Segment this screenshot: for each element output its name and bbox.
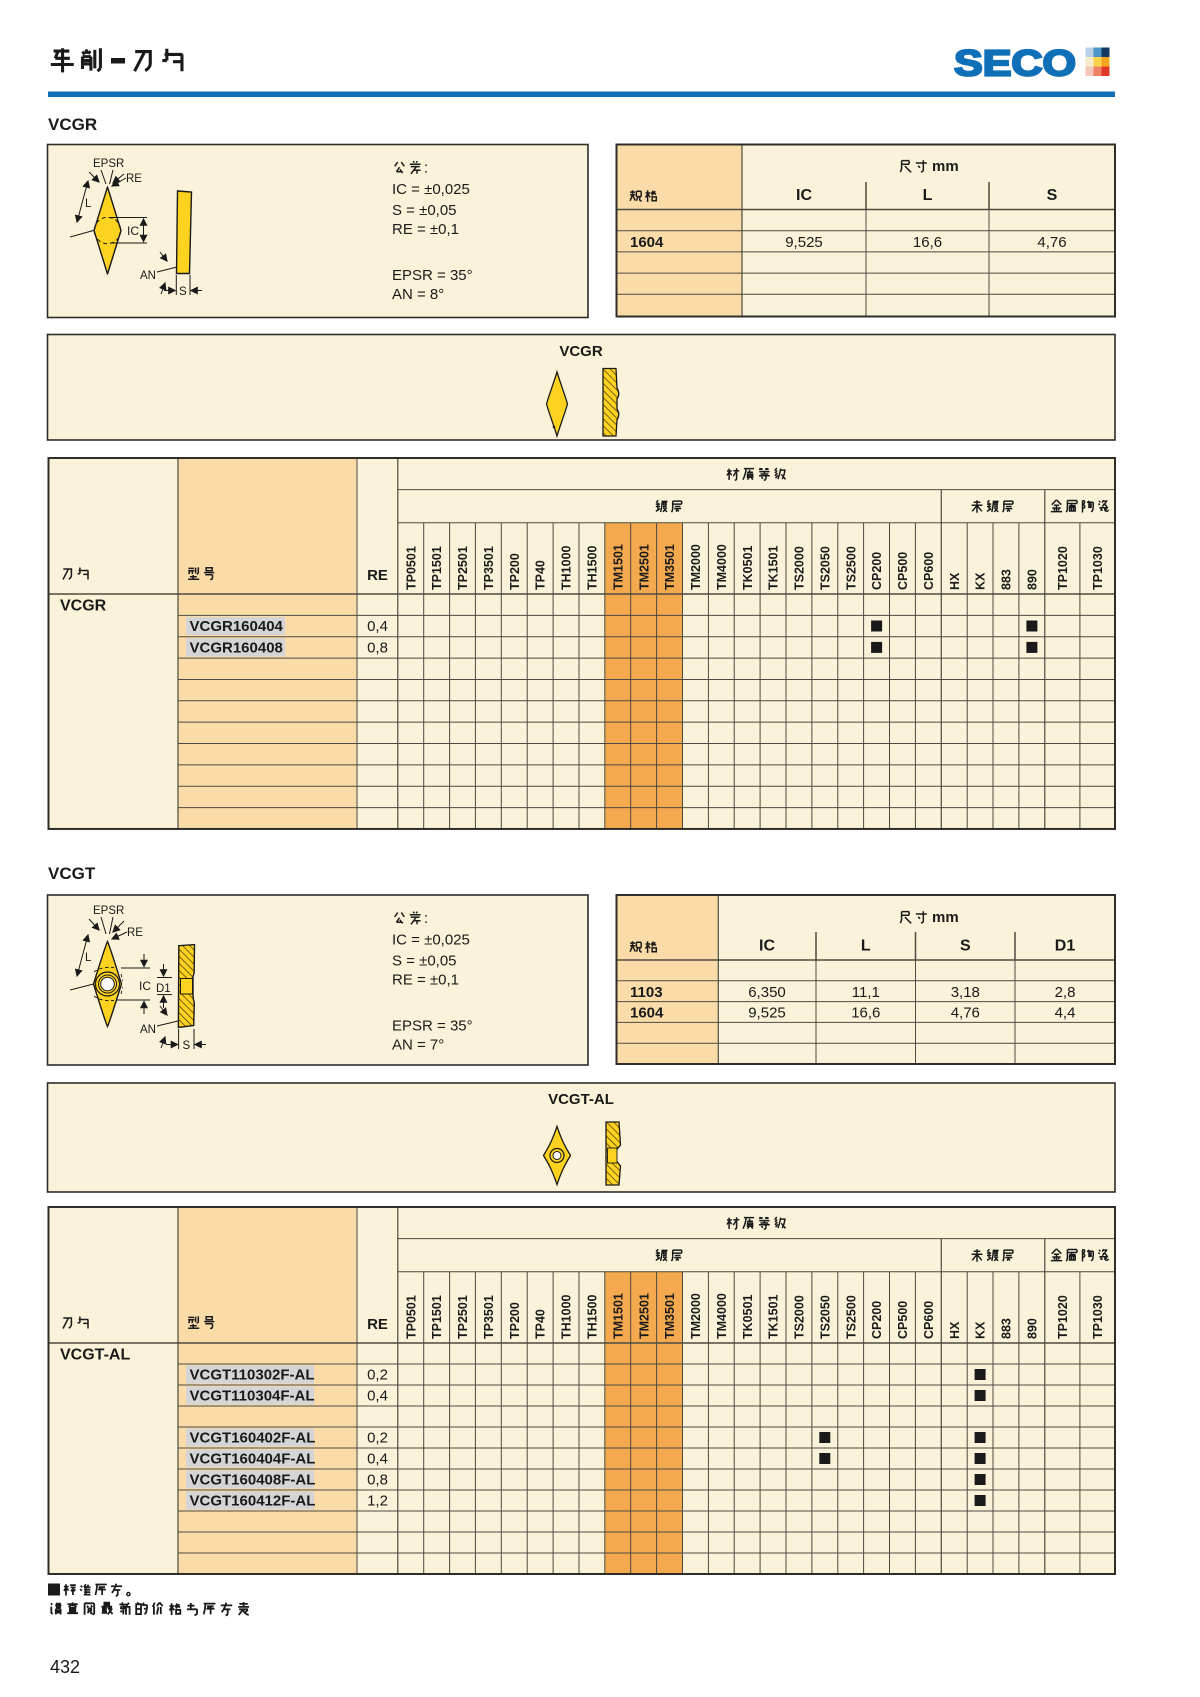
svg-text:VCGT160408F-AL: VCGT160408F-AL (190, 1472, 316, 1489)
svg-text:AN: AN (140, 1024, 156, 1036)
svg-text:TH1500: TH1500 (586, 545, 600, 590)
svg-text:VCGR: VCGR (559, 343, 603, 360)
svg-text:IC: IC (127, 224, 139, 238)
svg-text:TM1501: TM1501 (611, 544, 625, 590)
svg-text:AN = 7°: AN = 7° (392, 1037, 444, 1054)
svg-text:TK1501: TK1501 (767, 1294, 781, 1339)
svg-text:IC: IC (796, 187, 812, 204)
svg-text::: : (424, 160, 428, 177)
svg-text:TM3501: TM3501 (663, 544, 677, 590)
svg-text:0,4: 0,4 (367, 618, 388, 635)
svg-text:VCGT110304F-AL: VCGT110304F-AL (190, 1388, 315, 1405)
svg-text:890: 890 (1025, 569, 1039, 590)
svg-text:9,525: 9,525 (748, 1005, 786, 1022)
svg-text:KX: KX (974, 1321, 988, 1339)
svg-text:S = ±0,05: S = ±0,05 (392, 202, 457, 219)
svg-text:CP600: CP600 (922, 552, 936, 590)
svg-text:TS2500: TS2500 (844, 1295, 858, 1339)
svg-text:16,6: 16,6 (851, 1005, 880, 1022)
svg-text:RE: RE (367, 1316, 388, 1333)
svg-text:TS2000: TS2000 (793, 1295, 807, 1339)
svg-text:TK0501: TK0501 (741, 1294, 755, 1339)
svg-text:TP200: TP200 (508, 553, 522, 590)
svg-text:CP500: CP500 (896, 1301, 910, 1339)
svg-text:VCGT: VCGT (48, 864, 96, 883)
svg-text:AN = 8°: AN = 8° (392, 286, 444, 303)
svg-text:L: L (85, 198, 92, 210)
svg-text:VCGR160408: VCGR160408 (190, 640, 283, 657)
svg-text:TP1030: TP1030 (1091, 546, 1105, 590)
svg-text:TP1020: TP1020 (1056, 1295, 1070, 1339)
svg-text:EPSR: EPSR (93, 158, 124, 170)
svg-text:EPSR: EPSR (93, 905, 124, 917)
svg-text:0,4: 0,4 (367, 1388, 388, 1405)
svg-text:VCGT160412F-AL: VCGT160412F-AL (190, 1493, 316, 1510)
svg-text:IC: IC (759, 938, 775, 955)
svg-text:1,2: 1,2 (367, 1493, 388, 1510)
svg-text:TP1501: TP1501 (430, 546, 444, 590)
svg-text:RE: RE (127, 927, 143, 939)
svg-text:S: S (179, 286, 187, 298)
svg-text:0,2: 0,2 (367, 1367, 388, 1384)
svg-text:VCGR160404: VCGR160404 (190, 618, 284, 635)
svg-text:432: 432 (50, 1657, 80, 1677)
svg-text:1604: 1604 (630, 1005, 664, 1022)
svg-text:6,350: 6,350 (748, 984, 786, 1001)
svg-text:RE: RE (367, 567, 388, 584)
svg-text:IC = ±0,025: IC = ±0,025 (392, 932, 470, 949)
svg-text:D1: D1 (156, 983, 171, 995)
svg-text:TM2000: TM2000 (689, 544, 703, 590)
svg-text:mm: mm (932, 158, 959, 175)
svg-text:SECO: SECO (954, 43, 1076, 84)
svg-text:CP500: CP500 (896, 552, 910, 590)
svg-text:EPSR = 35°: EPSR = 35° (392, 267, 473, 284)
svg-text:1103: 1103 (630, 984, 663, 1001)
svg-text:CP200: CP200 (870, 1301, 884, 1339)
svg-text:0,2: 0,2 (367, 1430, 388, 1447)
svg-text:RE: RE (126, 173, 142, 185)
svg-text:VCGR: VCGR (60, 597, 107, 614)
svg-text:VCGT110302F-AL: VCGT110302F-AL (190, 1367, 315, 1384)
svg-text:L: L (85, 952, 92, 964)
svg-text:TS2500: TS2500 (844, 546, 858, 590)
svg-text:TP2501: TP2501 (456, 1295, 470, 1339)
svg-text:9,525: 9,525 (785, 234, 823, 251)
svg-text:TP1020: TP1020 (1056, 546, 1070, 590)
svg-text:TP40: TP40 (534, 1309, 548, 1339)
svg-text:VCGT-AL: VCGT-AL (60, 1346, 130, 1363)
svg-text:CP600: CP600 (922, 1301, 936, 1339)
svg-text:S = ±0,05: S = ±0,05 (392, 953, 457, 970)
svg-text:0,8: 0,8 (367, 640, 388, 657)
svg-text::: : (424, 910, 428, 927)
svg-text:TS2050: TS2050 (818, 1295, 832, 1339)
svg-text:IC = ±0,025: IC = ±0,025 (392, 181, 470, 198)
svg-text:16,6: 16,6 (913, 234, 942, 251)
svg-text:TM2501: TM2501 (637, 1293, 651, 1339)
svg-text:890: 890 (1025, 1318, 1039, 1339)
svg-text:IC: IC (139, 979, 151, 993)
svg-text:TP1030: TP1030 (1091, 1295, 1105, 1339)
svg-text:VCGT160404F-AL: VCGT160404F-AL (190, 1451, 316, 1468)
svg-text:TH1000: TH1000 (560, 1294, 574, 1339)
svg-text:AN: AN (140, 270, 156, 282)
svg-text:CP200: CP200 (870, 552, 884, 590)
svg-text:2,8: 2,8 (1055, 984, 1076, 1001)
svg-text:KX: KX (974, 572, 988, 590)
svg-text:4,4: 4,4 (1055, 1005, 1076, 1022)
svg-text:TM3501: TM3501 (663, 1293, 677, 1339)
svg-text:VCGT160402F-AL: VCGT160402F-AL (190, 1430, 316, 1447)
svg-text:HX: HX (948, 572, 962, 590)
svg-text:EPSR = 35°: EPSR = 35° (392, 1018, 473, 1035)
svg-text:RE = ±0,1: RE = ±0,1 (392, 972, 459, 989)
svg-text:RE = ±0,1: RE = ±0,1 (392, 221, 459, 238)
svg-text:S: S (1047, 187, 1058, 204)
svg-text:4,76: 4,76 (1037, 234, 1066, 251)
svg-text:VCGR: VCGR (48, 115, 97, 134)
svg-text:0,8: 0,8 (367, 1472, 388, 1489)
svg-text:11,1: 11,1 (852, 984, 880, 1001)
svg-text:TS2050: TS2050 (818, 546, 832, 590)
svg-text:S: S (183, 1040, 191, 1052)
svg-text:L: L (923, 187, 933, 204)
svg-text:TP2501: TP2501 (456, 546, 470, 590)
svg-text:TM4000: TM4000 (715, 544, 729, 590)
svg-text:TK0501: TK0501 (741, 545, 755, 590)
svg-text:883: 883 (1000, 1318, 1014, 1339)
svg-text:S: S (960, 938, 971, 955)
svg-text:TP0501: TP0501 (404, 546, 418, 590)
svg-text:0,4: 0,4 (367, 1451, 388, 1468)
svg-text:TH1000: TH1000 (560, 545, 574, 590)
svg-text:TM4000: TM4000 (715, 1293, 729, 1339)
svg-text:TP40: TP40 (534, 560, 548, 590)
svg-text:TK1501: TK1501 (767, 545, 781, 590)
svg-text:TP3501: TP3501 (482, 546, 496, 590)
svg-text:L: L (861, 938, 871, 955)
svg-text:3,18: 3,18 (951, 984, 980, 1001)
svg-text:4,76: 4,76 (951, 1005, 980, 1022)
svg-text:TM2501: TM2501 (637, 544, 651, 590)
svg-text:1604: 1604 (630, 234, 664, 251)
svg-text:HX: HX (948, 1321, 962, 1339)
svg-text:TP3501: TP3501 (482, 1295, 496, 1339)
svg-text:TS2000: TS2000 (793, 546, 807, 590)
svg-text:883: 883 (1000, 569, 1014, 590)
svg-text:D1: D1 (1055, 938, 1076, 955)
svg-text:TM2000: TM2000 (689, 1293, 703, 1339)
svg-text:TM1501: TM1501 (611, 1293, 625, 1339)
svg-text:mm: mm (932, 909, 959, 926)
svg-text:TH1500: TH1500 (586, 1294, 600, 1339)
svg-text:VCGT-AL: VCGT-AL (548, 1091, 614, 1108)
svg-text:TP0501: TP0501 (404, 1295, 418, 1339)
svg-text:TP200: TP200 (508, 1302, 522, 1339)
svg-text:TP1501: TP1501 (430, 1295, 444, 1339)
